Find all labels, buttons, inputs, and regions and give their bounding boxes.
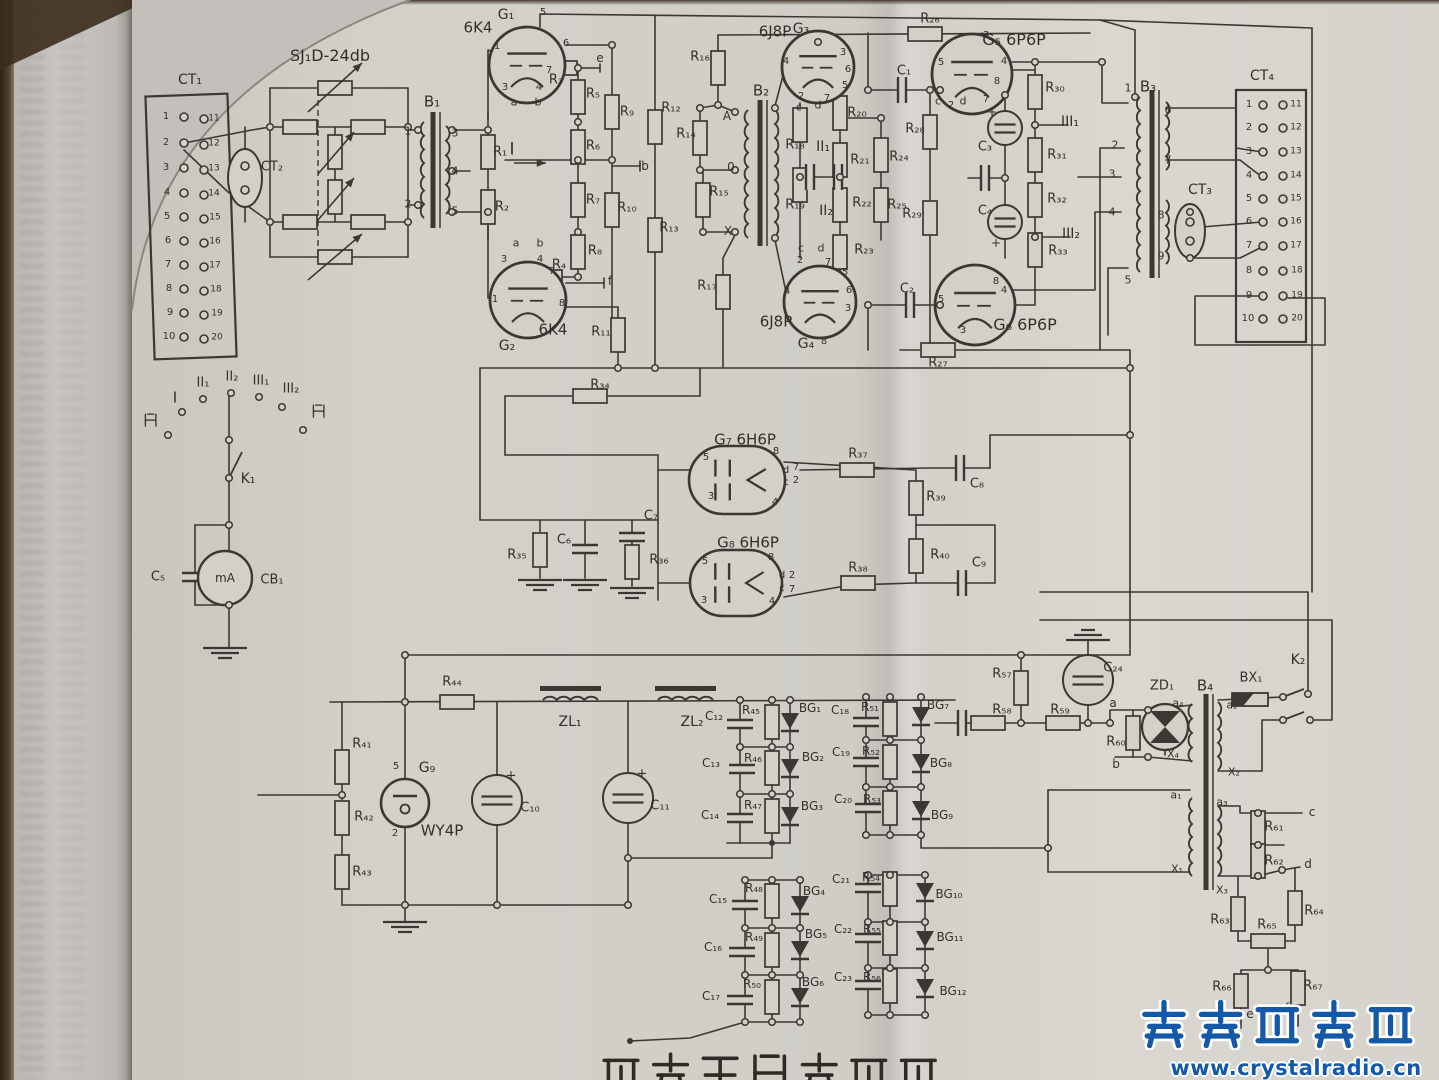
label-cjk-119: +: [987, 106, 997, 118]
label-R: R₅: [586, 88, 600, 101]
label-3: 3: [163, 163, 169, 173]
label-G: G₄: [798, 337, 814, 351]
label-R: R₁₀: [617, 202, 636, 215]
label-a: a₁: [1170, 790, 1181, 801]
label-5: 5: [540, 8, 546, 18]
label-R: R₅₂: [862, 745, 880, 757]
label-BG: BG₃: [801, 800, 823, 812]
label-R: R₄₁: [352, 738, 371, 751]
label-2: 2: [392, 829, 398, 839]
label-10: 10: [1242, 314, 1255, 324]
label-5: 5: [452, 206, 459, 217]
label-C: C₂₃: [834, 971, 852, 983]
label-K: K₁: [241, 472, 256, 486]
label-II: II₂: [819, 204, 833, 218]
label-G6H6P: G₈ 6H6P: [717, 536, 779, 551]
label-BG: BG₁₂: [940, 985, 967, 997]
label-20: 20: [1291, 315, 1302, 324]
label-1: 1: [163, 112, 169, 122]
label-B: B₂: [753, 84, 769, 99]
label-19: 19: [211, 310, 222, 319]
label-b: b: [535, 97, 542, 108]
label-R: R₄₈: [745, 882, 763, 894]
label-BG: BG₄: [803, 885, 825, 897]
label-4: 4: [536, 83, 542, 93]
label-R: R₃₆: [649, 554, 668, 567]
label-BG: BG₈: [930, 757, 952, 769]
label-d: d: [815, 100, 822, 111]
label-17: 17: [209, 262, 220, 271]
label-R: R₅₄: [862, 871, 880, 883]
label-R: R₃₈: [848, 562, 867, 575]
label-G6P6P: G₆ 6P6P: [993, 317, 1057, 333]
label-B: B₁: [424, 95, 440, 110]
label-f: f: [608, 275, 612, 287]
label-R: R₅₇: [992, 668, 1011, 681]
label-R: R₂: [495, 201, 509, 214]
label-R: R₃₄: [590, 379, 609, 392]
label-X: X₁: [1171, 864, 1183, 875]
label-R: R₃₅: [507, 549, 526, 562]
label-7: 7: [1246, 241, 1252, 251]
label-R: R₁₃: [659, 222, 678, 235]
label-6J8P: 6J8P: [759, 25, 792, 40]
label-R: R₂₇: [928, 357, 947, 370]
label-5: 5: [842, 81, 848, 91]
label-R: R₄₄: [442, 676, 461, 689]
label-R: R₁₅: [709, 186, 728, 199]
label-R: R₂₆: [920, 13, 939, 26]
label-4: 4: [784, 287, 790, 297]
label-7: 7: [549, 267, 555, 277]
label-3: 3: [701, 596, 707, 606]
label-3: 3: [983, 31, 989, 41]
label-12: 12: [208, 140, 219, 149]
label-R: R₆₂: [1264, 855, 1283, 868]
label-C: C₈: [970, 478, 984, 491]
label-ZL: ZL₂: [680, 715, 703, 729]
label-X: X: [724, 225, 732, 237]
label-C: C₁₆: [704, 941, 722, 953]
label-2: 2: [797, 256, 803, 266]
label-c: c: [783, 478, 789, 488]
label-5: 5: [1246, 194, 1252, 204]
label-R: R₁₉: [785, 199, 804, 212]
label-C: C₂: [900, 283, 914, 296]
label-20: 20: [211, 334, 222, 343]
label-X: X₄: [1167, 749, 1179, 760]
label-cjk-215: +: [506, 770, 517, 783]
label-R: R₄₂: [354, 811, 373, 824]
label-I: I: [509, 142, 514, 159]
label-6J8P: 6J8P: [760, 315, 793, 330]
label-6K4: 6K4: [539, 323, 568, 338]
label-R: R₆₇: [1303, 980, 1322, 993]
label-G: G₃: [793, 22, 809, 36]
label-3: 3: [452, 128, 459, 139]
figure-caption: [600, 1052, 947, 1080]
label-R: R₂₄: [889, 151, 908, 164]
label-G6P6P: G₅ 6P6P: [982, 32, 1046, 48]
label-14: 14: [208, 190, 219, 199]
label-R: R₁₂: [661, 102, 680, 115]
label-R: R₃₀: [1045, 82, 1064, 95]
label-G6H6P: G₇ 6H6P: [714, 433, 776, 448]
label-3: 3: [708, 492, 714, 502]
label-ZL: ZL₁: [558, 715, 581, 729]
label-2: 2: [163, 138, 169, 148]
label-K: K₂: [1291, 653, 1306, 667]
label-c: c: [935, 96, 941, 107]
label-C: C₁₁: [650, 800, 670, 813]
label-5: 5: [393, 762, 399, 772]
label-6: 6: [1246, 217, 1252, 227]
label-C: C₁: [897, 65, 911, 78]
label-II: II₂: [226, 371, 239, 384]
label-13: 13: [1290, 148, 1301, 157]
label-R: R₃₂: [1047, 193, 1066, 206]
label-R: R₇: [586, 194, 600, 207]
label-4: 4: [769, 597, 775, 607]
label-BG: BG₂: [802, 751, 824, 763]
label-5: 5: [164, 212, 170, 222]
label-R: R₂₁: [850, 154, 869, 167]
label-R: R₃₁: [1047, 149, 1066, 162]
label-4: 4: [537, 255, 543, 265]
label-C: C₇: [644, 510, 658, 523]
label-B: B₄: [1197, 679, 1213, 694]
watermark-url: www.crystalradio.cn: [1156, 1056, 1436, 1080]
label-R: R₅₁: [861, 701, 879, 713]
schematic-labels: CT₁SJ₁D-24dbCT₂B₁12345123456789101112131…: [0, 0, 1439, 1080]
label-3: 3: [840, 48, 846, 58]
label-SJD24db: SJ₁D-24db: [290, 48, 370, 64]
label-4: 4: [164, 188, 170, 198]
label-R: R₈: [588, 245, 602, 258]
label-5: 5: [938, 58, 944, 68]
label-3: 3: [502, 83, 508, 93]
label-8: 8: [773, 447, 779, 457]
label-II: II₁: [197, 377, 210, 390]
label-R: R₆₀: [1106, 736, 1125, 749]
label-d: d: [1304, 858, 1312, 870]
label-3: 3: [960, 326, 966, 336]
label-6: 6: [165, 236, 171, 246]
label-III: III₂: [283, 383, 300, 396]
label-6K4: 6K4: [464, 21, 493, 36]
label-CB: CB₁: [260, 574, 283, 587]
label-d: d: [818, 243, 825, 254]
label-18: 18: [1291, 267, 1302, 276]
label-7: 7: [789, 585, 795, 595]
label-cjk-121: +: [991, 237, 1001, 249]
label-a: a₃: [1216, 797, 1227, 808]
label-C: C₄: [978, 205, 992, 218]
label-C: C₁₇: [702, 990, 720, 1002]
label-cjk-166: [143, 413, 161, 432]
label-C: C₁₈: [831, 704, 849, 716]
label-a: a₂: [1226, 700, 1237, 711]
label-12: 12: [1290, 124, 1301, 133]
label-4: 4: [1109, 207, 1116, 218]
label-R: R₁₄: [676, 128, 695, 141]
label-R: R₃: [549, 74, 563, 87]
label-BG: BG₁₀: [936, 888, 963, 900]
label-R: R₁₆: [690, 51, 709, 64]
label-WY4P: WY4P: [421, 824, 464, 839]
label-R: R₉: [620, 106, 634, 119]
label-18: 18: [210, 286, 221, 295]
label-mA: mA: [215, 572, 235, 584]
label-C: C₁₃: [702, 757, 720, 769]
book-photo: CT₁SJ₁D-24dbCT₂B₁12345123456789101112131…: [0, 0, 1439, 1080]
label-14: 14: [1290, 172, 1301, 181]
label-1: 1: [492, 295, 498, 305]
label-b: b: [1112, 758, 1120, 770]
label-2: 2: [948, 101, 954, 111]
label-CT: CT₃: [1188, 183, 1212, 197]
label-R: R₃₃: [1048, 245, 1067, 258]
label-b: b: [641, 160, 649, 172]
label-G: G₁: [498, 8, 514, 22]
label-R: R₅₉: [1050, 704, 1069, 717]
label-R: R₆₆: [1212, 981, 1231, 994]
label-5: 5: [938, 295, 944, 305]
label-2: 2: [793, 476, 799, 486]
label-C: C₂₄: [1103, 662, 1123, 675]
label-R: R₅₈: [992, 704, 1011, 717]
label-13: 13: [208, 165, 219, 174]
label-R: R₆: [586, 140, 600, 153]
label-1: 1: [494, 42, 500, 52]
label-R: R₅₀: [743, 978, 761, 990]
label-R: R₁₇: [697, 280, 716, 293]
label-17: 17: [1290, 242, 1301, 251]
label-CT: CT₁: [178, 73, 202, 87]
label-a: a: [513, 238, 520, 249]
label-8: 8: [1158, 210, 1165, 221]
label-C: C₆: [557, 534, 571, 547]
label-4: 4: [1001, 57, 1007, 67]
label-11: 11: [208, 115, 219, 124]
label-16: 16: [209, 238, 220, 247]
label-R: R₃₉: [926, 491, 945, 504]
label-R: R₂₂: [852, 197, 871, 210]
label-4: 4: [1246, 171, 1252, 181]
label-R: R₁₈: [785, 139, 804, 152]
label-4: 4: [772, 498, 778, 508]
label-A: A: [723, 110, 731, 122]
label-6: 6: [563, 39, 569, 49]
label-e: e: [596, 52, 603, 64]
label-a: a: [1109, 697, 1116, 709]
label-BG: BG₅: [805, 928, 827, 940]
label-a: a: [511, 97, 518, 108]
label-C: C₁₂: [705, 710, 723, 722]
label-III: III₁: [1061, 115, 1079, 129]
label-d: d: [783, 466, 789, 476]
label-X: X₃: [1216, 885, 1228, 896]
label-G: G₉: [419, 761, 435, 775]
label-c: c: [1309, 806, 1316, 818]
label-C: C₂₁: [832, 873, 850, 885]
label-R: R₆₁: [1264, 821, 1283, 834]
label-cjk-217: +: [637, 768, 648, 781]
label-6: 6: [1165, 105, 1172, 116]
label-d: d: [960, 96, 967, 107]
label-C: C₃: [978, 141, 992, 154]
label-1: 1: [1125, 83, 1132, 94]
label-8: 8: [166, 284, 172, 294]
label-BG: BG₆: [802, 976, 824, 988]
label-X: X₂: [1228, 767, 1240, 778]
label-15: 15: [1290, 195, 1301, 204]
label-R: R₁₁: [591, 326, 610, 339]
label-2: 2: [1246, 123, 1252, 133]
label-9: 9: [167, 308, 173, 318]
label-R: R₅₃: [863, 793, 881, 805]
label-R: R₂₃: [854, 244, 873, 257]
label-0: 0: [727, 161, 735, 173]
label-9: 9: [1246, 291, 1252, 301]
label-5: 5: [1125, 275, 1132, 286]
label-R: R₆₅: [1257, 919, 1276, 932]
label-8: 8: [994, 77, 1000, 87]
label-R: R₅₆: [863, 971, 881, 983]
label-R: R₄₆: [744, 752, 762, 764]
label-3: 3: [845, 304, 851, 314]
label-R: R₃₇: [848, 448, 867, 461]
label-8: 8: [1246, 266, 1252, 276]
label-2: 2: [1112, 140, 1119, 151]
label-3: 3: [1246, 147, 1252, 157]
label-C: C₂₀: [834, 793, 852, 805]
label-8: 8: [768, 553, 774, 563]
label-BG: BG₇: [927, 699, 949, 711]
label-7: 7: [825, 258, 831, 268]
label-R: R₅₅: [863, 923, 881, 935]
label-5: 5: [842, 268, 848, 278]
label-15: 15: [209, 214, 220, 223]
label-C: C₁₉: [832, 746, 850, 758]
label-R: R₂₀: [847, 107, 866, 120]
label-B: B₃: [1140, 80, 1156, 95]
label-C: C₂₂: [834, 923, 852, 935]
label-c: c: [779, 584, 785, 594]
label-a: a₄: [1172, 698, 1183, 709]
label-11: 11: [1290, 101, 1301, 110]
label-5: 5: [703, 453, 709, 463]
label-R: R₁: [493, 146, 507, 159]
label-BX: BX₁: [1239, 672, 1262, 685]
label-cjk-172: [311, 404, 329, 423]
label-6: 6: [846, 286, 852, 296]
label-2: 2: [789, 571, 795, 581]
label-R: R₄₃: [352, 866, 371, 879]
label-C: C₅: [151, 571, 165, 584]
label-R: R₂₈: [905, 123, 924, 136]
label-C: C₉: [972, 557, 986, 570]
label-R: R₂₉: [902, 208, 921, 221]
label-2: 2: [405, 199, 412, 210]
label-C: C₁₄: [701, 809, 719, 821]
label-R: R₄₉: [745, 931, 763, 943]
label-III: III₁: [253, 375, 270, 388]
label-C: C₁₅: [709, 893, 727, 905]
label-4: 4: [783, 57, 789, 67]
label-R: R₄₇: [744, 799, 762, 811]
label-4: 4: [1001, 286, 1007, 296]
label-19: 19: [1291, 292, 1302, 301]
label-c: c: [798, 243, 804, 254]
label-II: II₁: [816, 140, 830, 154]
label-CT: CT₄: [1250, 69, 1274, 83]
label-9: 9: [1158, 251, 1165, 262]
label-ZD: ZD₁: [1150, 680, 1174, 693]
label-7: 7: [824, 94, 830, 104]
label-5: 5: [702, 557, 708, 567]
label-c: c: [796, 102, 802, 113]
label-CT: CT₂: [261, 161, 283, 174]
label-1: 1: [1246, 100, 1252, 110]
label-10: 10: [163, 332, 176, 342]
label-1: 1: [405, 126, 412, 137]
label-8: 8: [821, 337, 827, 347]
label-I: I: [173, 391, 177, 406]
label-R: R₄₀: [930, 549, 949, 562]
label-7: 7: [1165, 155, 1172, 166]
label-G: G₂: [499, 339, 515, 353]
label-6: 6: [845, 65, 851, 75]
label-8: 8: [559, 299, 565, 309]
label-3: 3: [1109, 169, 1116, 180]
label-4: 4: [452, 166, 459, 177]
label-d: d: [779, 571, 785, 581]
label-7: 7: [793, 463, 799, 473]
label-R: R₄₅: [742, 704, 760, 716]
label-b: b: [537, 238, 544, 249]
label-3: 3: [501, 255, 507, 265]
label-R: R₆₃: [1210, 914, 1229, 927]
label-16: 16: [1290, 218, 1301, 227]
label-8: 8: [993, 277, 999, 287]
label-BG: BG₁₁: [937, 931, 964, 943]
label-7: 7: [983, 95, 989, 105]
label-R: R₆₄: [1304, 905, 1323, 918]
label-III: III₂: [1062, 227, 1080, 241]
label-BG: BG₉: [931, 809, 953, 821]
label-BG: BG₁: [799, 702, 821, 714]
label-7: 7: [165, 260, 171, 270]
label-C: C₁₀: [520, 802, 540, 815]
